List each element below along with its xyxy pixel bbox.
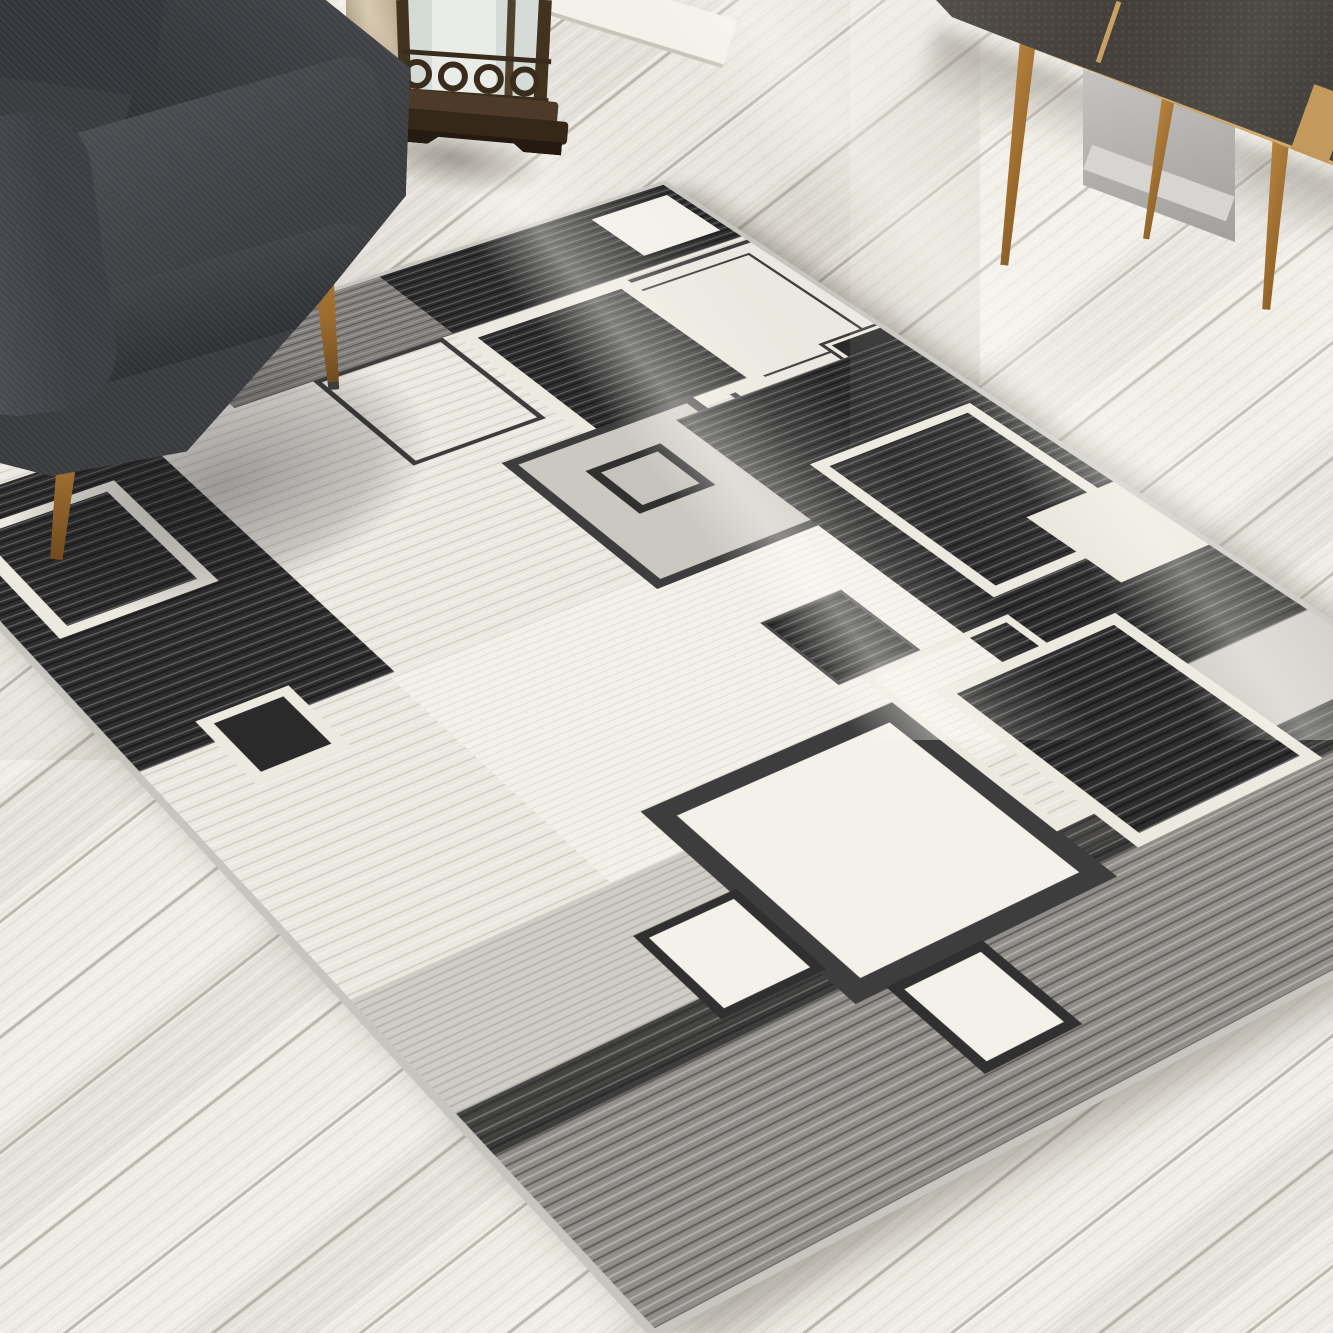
sideboard-door-divider: [1096, 1, 1122, 63]
lantern-ring-ornament: [473, 63, 505, 95]
living-room-photo: [0, 0, 1333, 1333]
lantern-ring-ornament: [437, 60, 469, 92]
rug-grey-square-inner: [585, 443, 715, 513]
lantern-ring-ornament: [509, 65, 541, 97]
